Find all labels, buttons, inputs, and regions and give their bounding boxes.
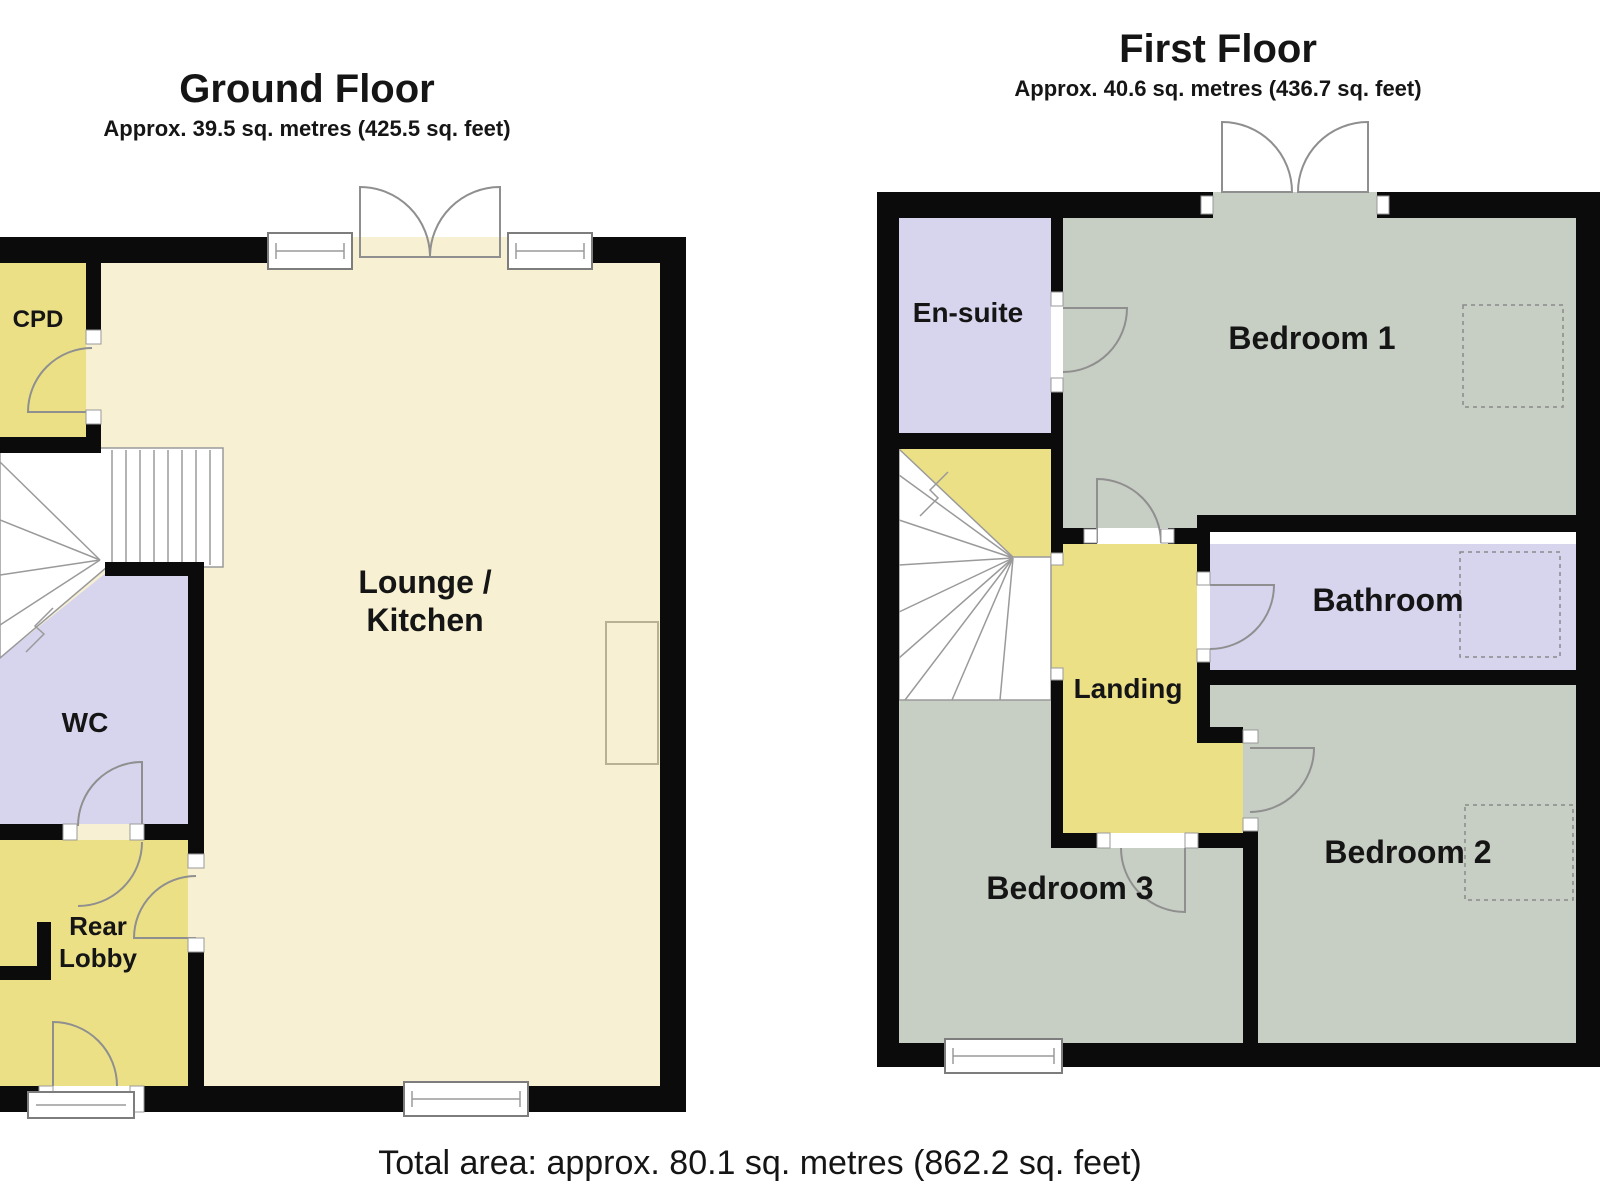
wall-segment bbox=[105, 562, 193, 576]
french-door-left-leaf-icon bbox=[1222, 122, 1292, 192]
wall-segment bbox=[188, 938, 204, 1086]
door-jamb bbox=[1051, 378, 1063, 392]
first-floor-plan: First Floor Approx. 40.6 sq. metres (436… bbox=[877, 27, 1600, 1073]
wall-segment bbox=[1051, 218, 1063, 303]
room-label-ensuite: En-suite bbox=[913, 297, 1023, 328]
door-jamb bbox=[1243, 818, 1258, 831]
room-label-bedroom1: Bedroom 1 bbox=[1228, 320, 1395, 356]
room-label-landing: Landing bbox=[1074, 673, 1183, 704]
wall-segment bbox=[142, 824, 204, 840]
door-jamb bbox=[1051, 553, 1063, 565]
window-icon bbox=[945, 1039, 1062, 1073]
first-floor-title: First Floor bbox=[1119, 27, 1317, 71]
door-jamb bbox=[86, 330, 101, 344]
french-door-right-leaf-icon bbox=[1298, 122, 1368, 192]
wall-segment bbox=[0, 824, 63, 840]
door-jamb bbox=[63, 824, 77, 840]
wall-segment bbox=[1197, 670, 1576, 685]
wall-segment bbox=[1576, 192, 1600, 1067]
wall-segment bbox=[1051, 390, 1063, 433]
total-area-text: Total area: approx. 80.1 sq. metres (862… bbox=[378, 1144, 1142, 1182]
wall-segment bbox=[188, 562, 204, 840]
french-door-threshold-first bbox=[1213, 192, 1377, 218]
door-jamb bbox=[1084, 529, 1097, 543]
room-label-rear-lobby-line2: Lobby bbox=[59, 943, 138, 973]
door-jamb bbox=[1201, 196, 1213, 214]
wall-segment bbox=[37, 922, 51, 980]
door-jamb bbox=[188, 938, 204, 952]
wall-segment bbox=[1197, 515, 1576, 532]
wall-segment bbox=[1210, 727, 1243, 743]
room-label-bedroom2: Bedroom 2 bbox=[1324, 834, 1491, 870]
wall-segment bbox=[1377, 192, 1600, 218]
wall-segment bbox=[1051, 680, 1063, 848]
room-label-bathroom: Bathroom bbox=[1312, 582, 1463, 618]
wall-segment bbox=[0, 437, 101, 453]
window-icon bbox=[268, 233, 352, 269]
room-label-wc: WC bbox=[62, 707, 109, 738]
window-icon bbox=[404, 1082, 528, 1116]
room-label-cpd: CPD bbox=[13, 306, 64, 333]
ground-floor-plan: Ground Floor Approx. 39.5 sq. metres (42… bbox=[0, 67, 686, 1118]
first-floor-subtitle: Approx. 40.6 sq. metres (436.7 sq. feet) bbox=[1014, 76, 1421, 101]
wall-segment bbox=[877, 433, 1063, 449]
wall-segment bbox=[660, 237, 686, 1112]
door-jamb bbox=[1197, 649, 1210, 662]
door-jamb bbox=[1051, 292, 1063, 306]
room-label-rear-lobby-line1: Rear bbox=[69, 911, 127, 941]
door-jamb bbox=[1243, 730, 1258, 743]
wall-segment bbox=[0, 966, 37, 980]
wall-segment bbox=[86, 263, 101, 340]
ground-floor-title: Ground Floor bbox=[179, 67, 435, 111]
landing-extension-floor bbox=[1197, 743, 1243, 833]
door-jamb bbox=[1185, 833, 1198, 848]
window-icon bbox=[508, 233, 592, 269]
window-icon bbox=[28, 1092, 134, 1118]
room-bedroom1-floor bbox=[1063, 218, 1576, 528]
floorplan-canvas: Ground Floor Approx. 39.5 sq. metres (42… bbox=[0, 0, 1600, 1200]
door-jamb bbox=[86, 410, 101, 424]
wall-segment bbox=[877, 192, 899, 1067]
door-jamb bbox=[1097, 833, 1110, 848]
wall-segment bbox=[877, 192, 1213, 218]
room-label-bedroom3: Bedroom 3 bbox=[986, 870, 1153, 906]
door-jamb bbox=[188, 854, 204, 868]
room-label-lounge-line1: Lounge / bbox=[358, 564, 491, 600]
floorplan-page: Ground Floor Approx. 39.5 sq. metres (42… bbox=[0, 0, 1600, 1200]
door-jamb bbox=[130, 824, 144, 840]
wall-segment bbox=[1197, 685, 1210, 743]
door-jamb bbox=[1161, 529, 1174, 543]
wall-segment bbox=[1243, 818, 1258, 1043]
door-jamb bbox=[1377, 196, 1389, 214]
ground-floor-subtitle: Approx. 39.5 sq. metres (425.5 sq. feet) bbox=[103, 116, 510, 141]
door-jamb bbox=[1197, 572, 1210, 585]
room-label-lounge-line2: Kitchen bbox=[366, 602, 483, 638]
door-jamb bbox=[1051, 668, 1063, 680]
